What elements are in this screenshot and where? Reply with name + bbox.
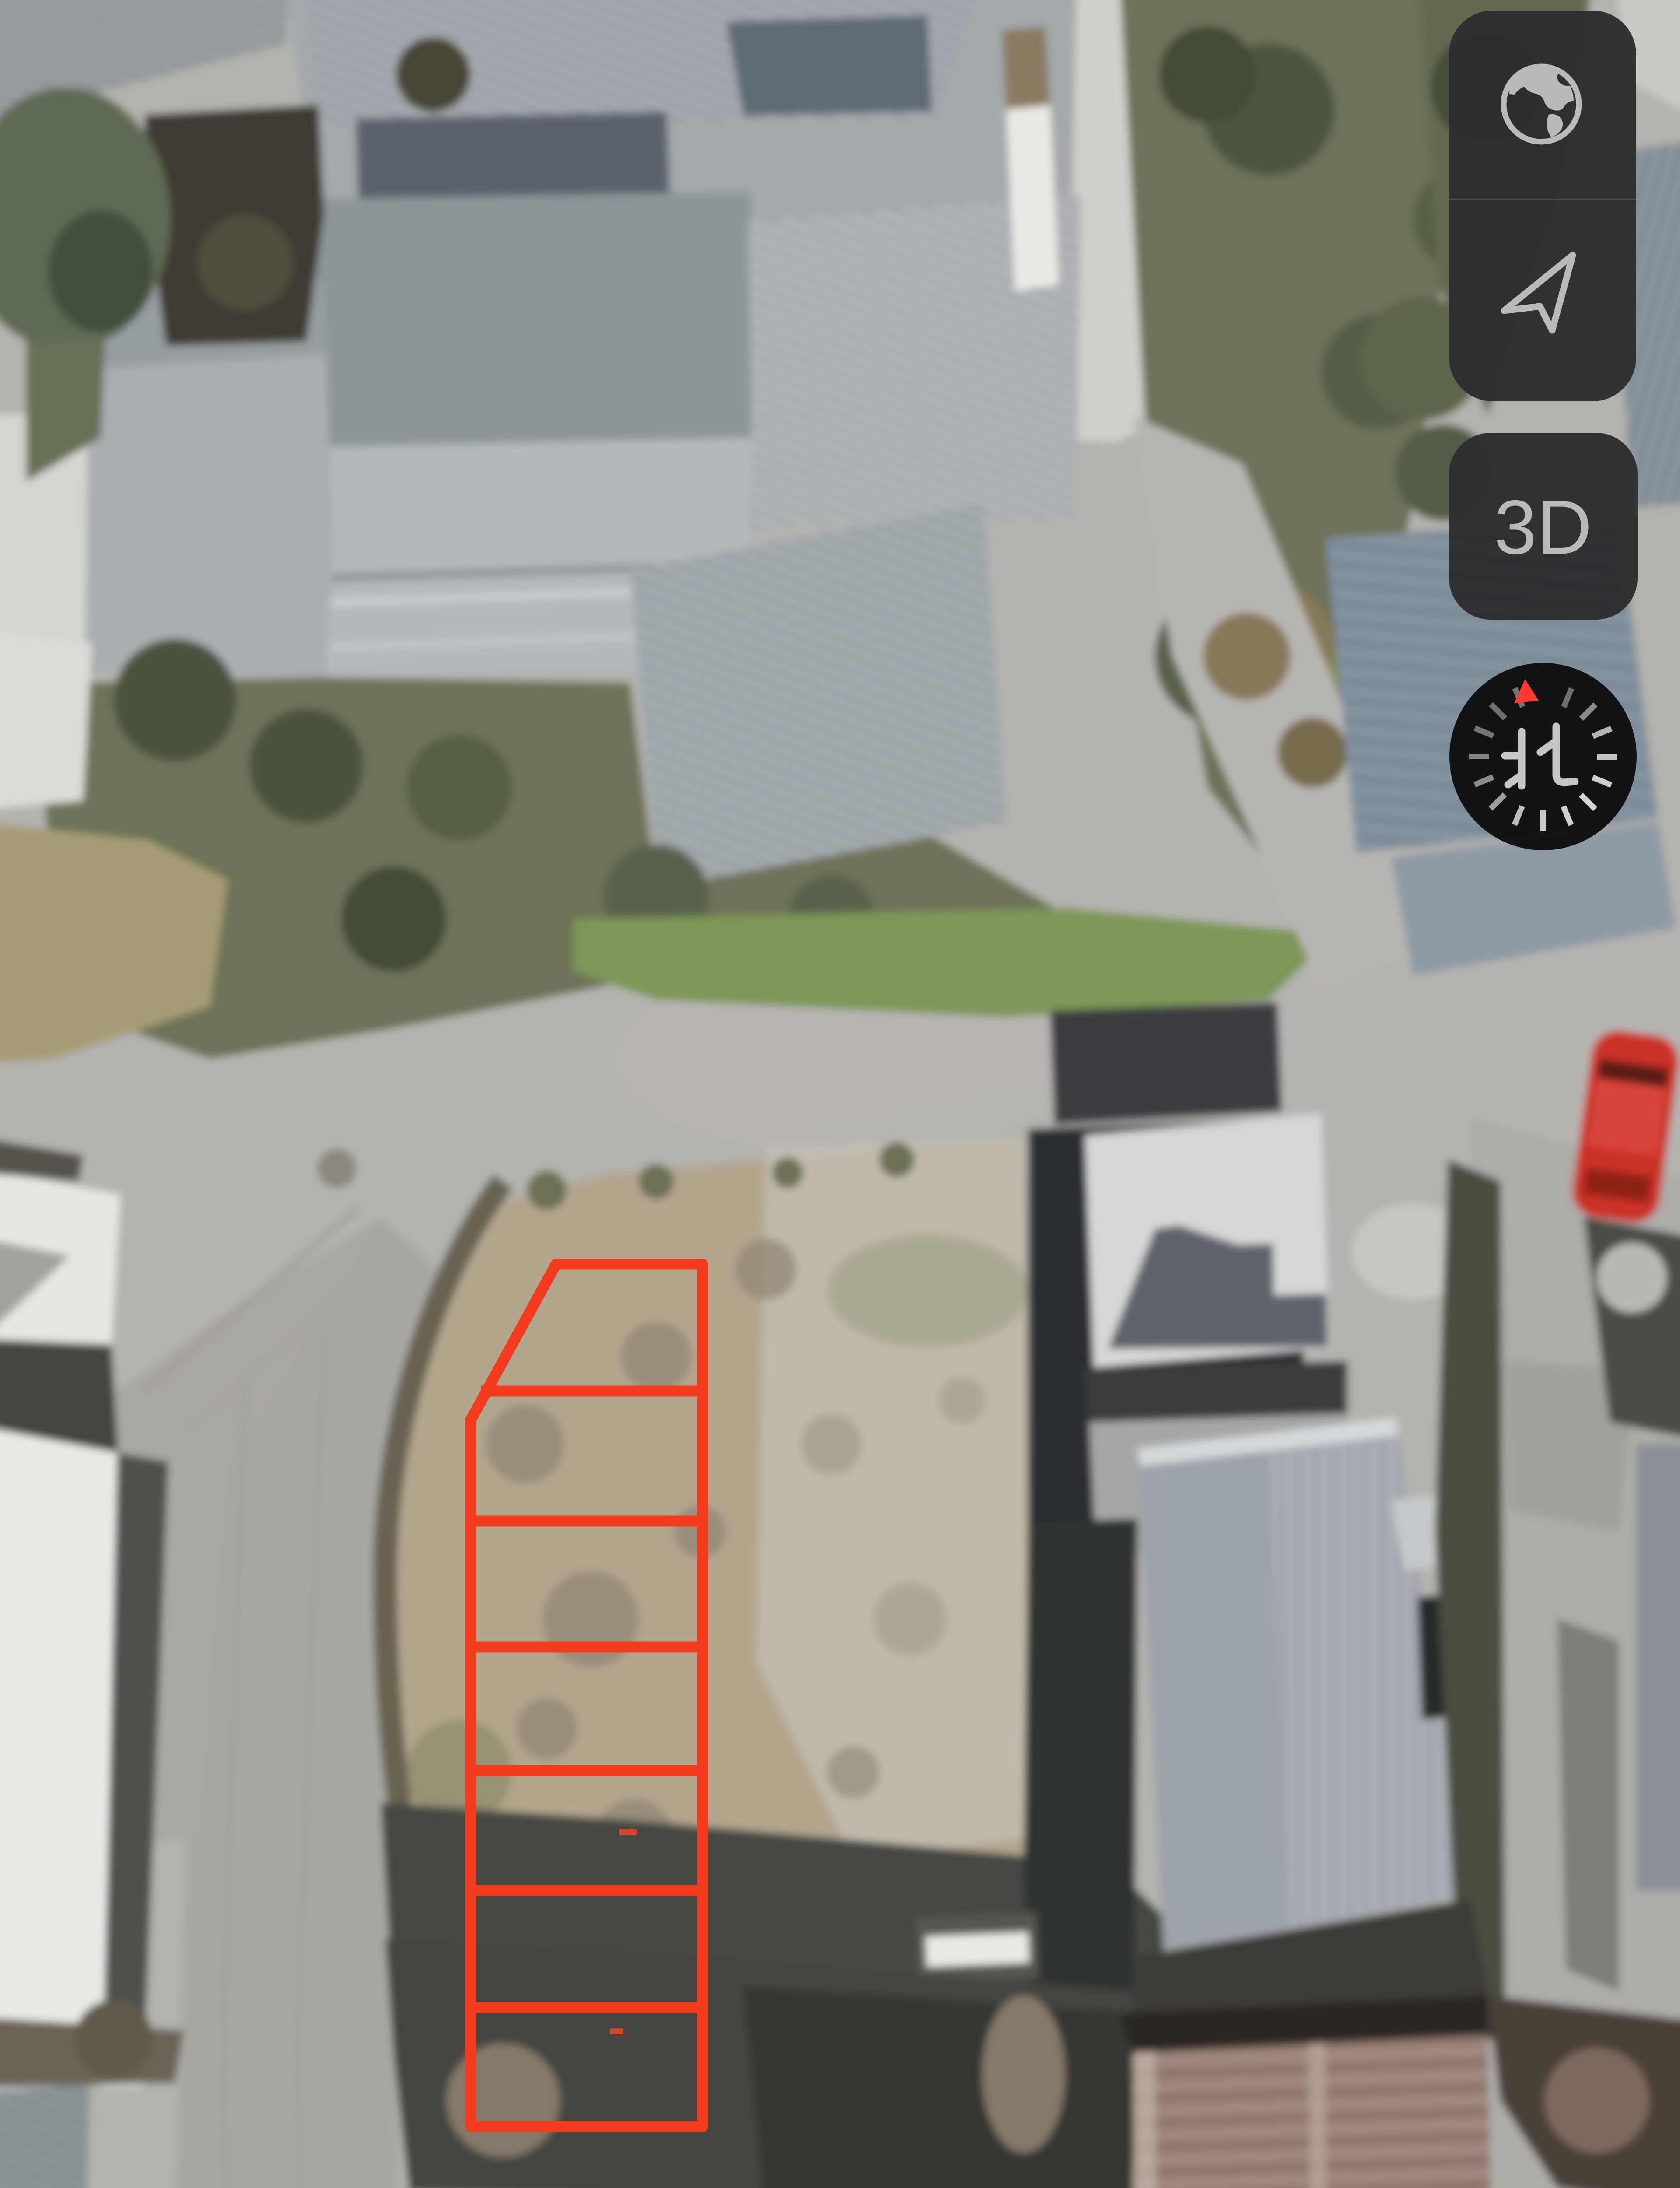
svg-text:3D: 3D (1494, 485, 1592, 570)
